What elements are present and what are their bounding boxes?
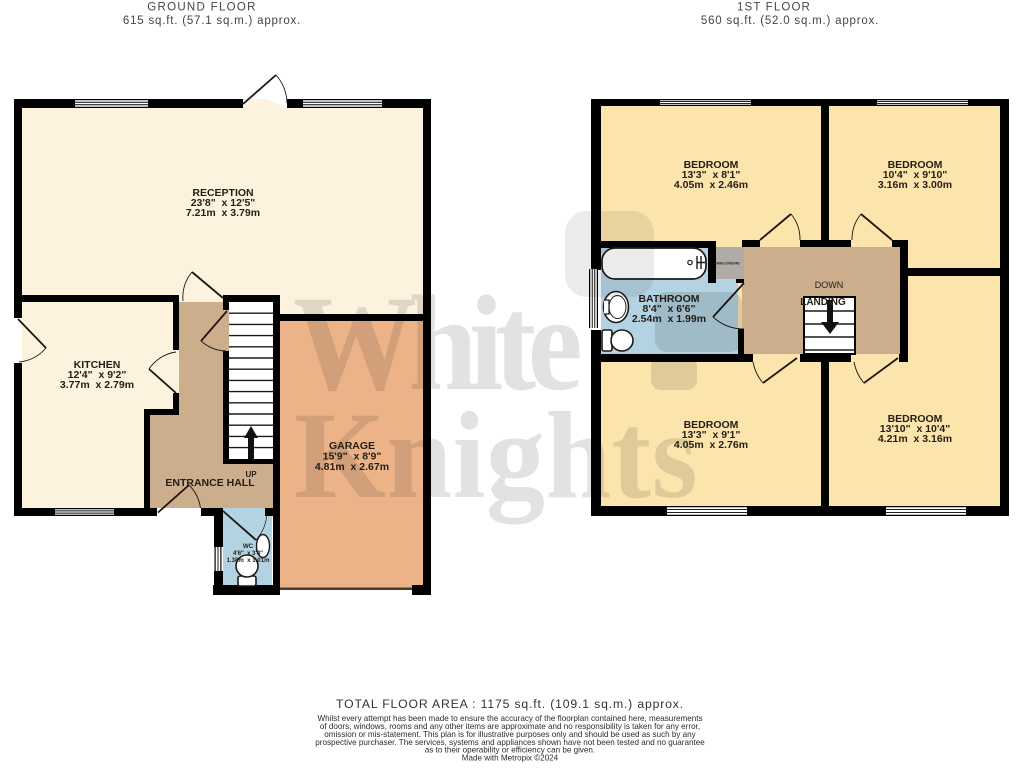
svg-text:UP: UP xyxy=(245,470,257,479)
svg-text:7.21m x 3.79m: 7.21m x 3.79m xyxy=(186,207,260,219)
svg-text:1ST FLOOR: 1ST FLOOR xyxy=(737,1,811,13)
svg-text:Made with Metropix ©2024: Made with Metropix ©2024 xyxy=(462,754,559,763)
svg-text:615 sq.ft. (57.1 sq.m.) approx: 615 sq.ft. (57.1 sq.m.) approx. xyxy=(123,15,301,27)
svg-text:560 sq.ft. (52.0 sq.m.) approx: 560 sq.ft. (52.0 sq.m.) approx. xyxy=(701,15,879,27)
svg-text:GROUND FLOOR: GROUND FLOOR xyxy=(147,1,257,13)
svg-text:TOTAL FLOOR AREA : 1175 sq.ft.: TOTAL FLOOR AREA : 1175 sq.ft. (109.1 sq… xyxy=(336,697,684,711)
svg-text:4.21m x 3.16m: 4.21m x 3.16m xyxy=(878,433,952,445)
svg-text:Knights: Knights xyxy=(294,387,698,524)
svg-text:ENTRANCE HALL: ENTRANCE HALL xyxy=(165,477,255,489)
svg-text:1.38m x 1.01m: 1.38m x 1.01m xyxy=(227,557,270,564)
svg-text:4.05m x 2.46m: 4.05m x 2.46m xyxy=(674,179,748,191)
svg-text:DOWN: DOWN xyxy=(815,280,844,290)
svg-text:4'6" x 3'4": 4'6" x 3'4" xyxy=(233,550,263,557)
svg-text:AIRING CUPBOARD: AIRING CUPBOARD xyxy=(715,262,740,266)
svg-text:WC: WC xyxy=(243,543,254,550)
svg-text:3.16m x 3.00m: 3.16m x 3.00m xyxy=(878,179,952,191)
svg-text:LANDING: LANDING xyxy=(800,297,846,308)
svg-text:3.77m x 2.79m: 3.77m x 2.79m xyxy=(60,379,134,391)
